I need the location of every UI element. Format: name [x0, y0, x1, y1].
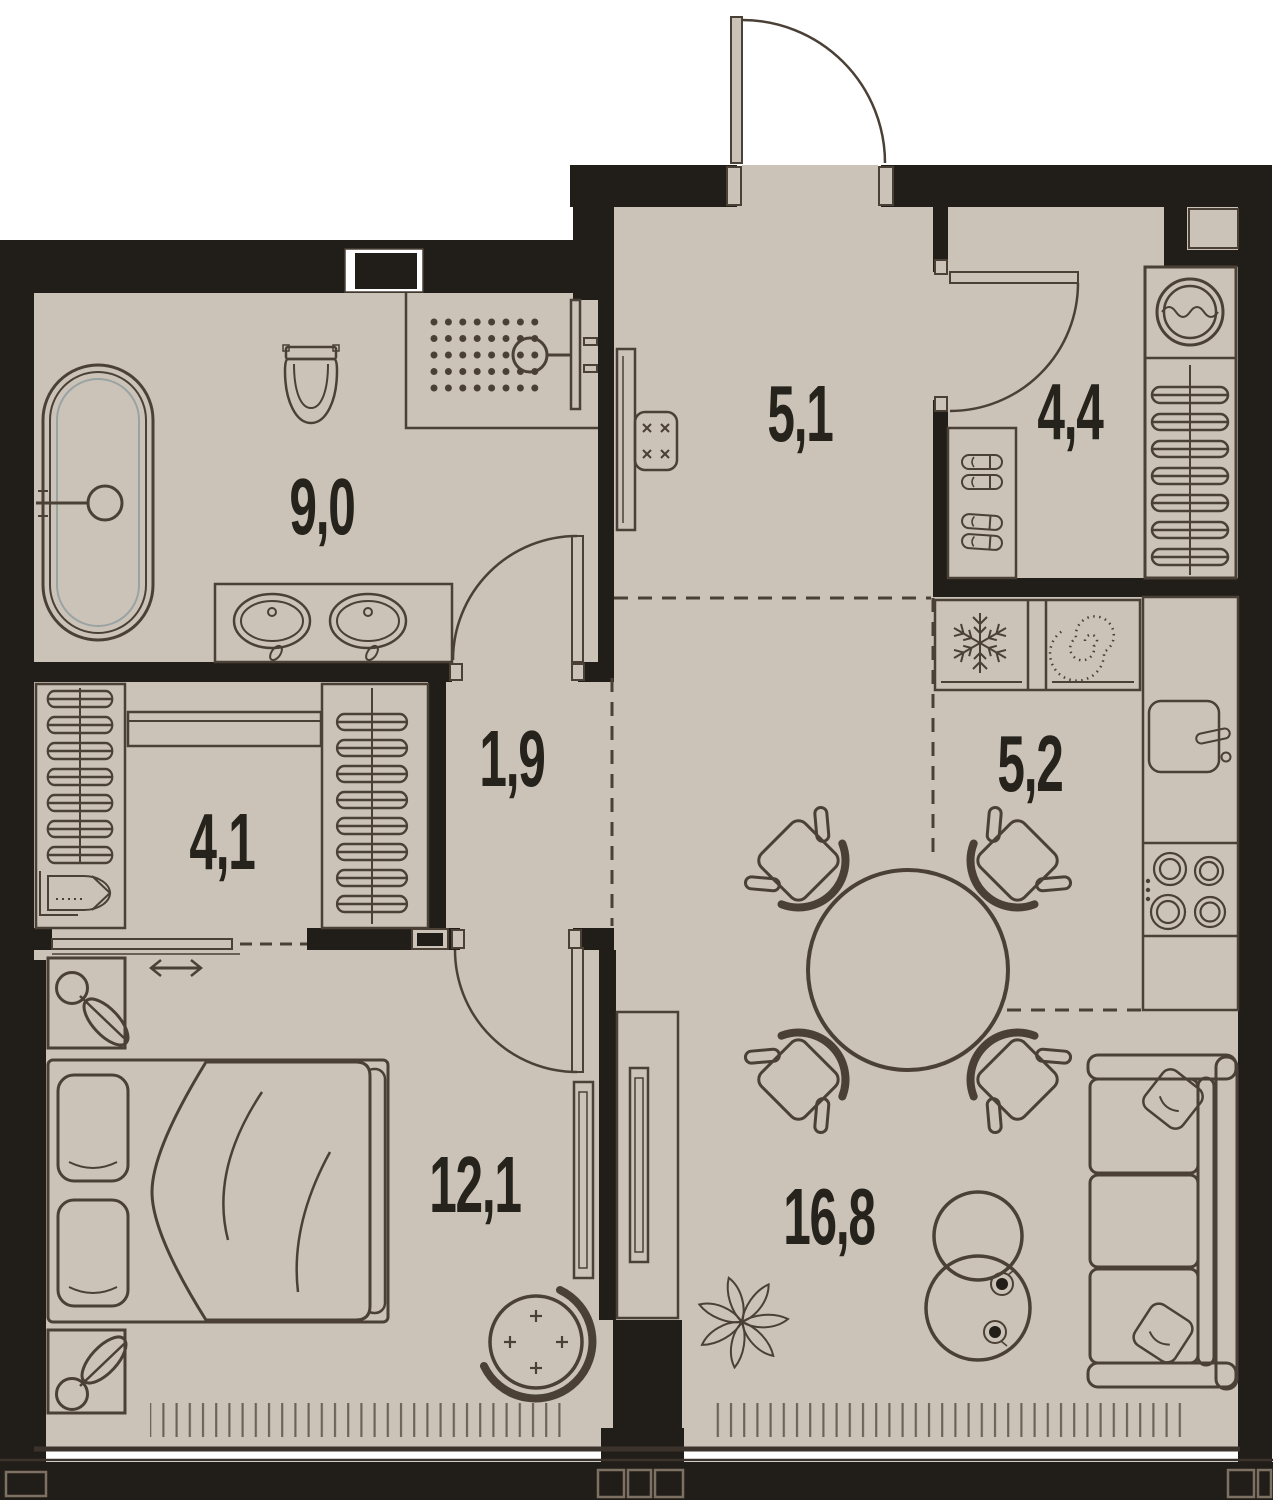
window-hatch — [710, 1399, 1188, 1437]
room-label-bedroom: 12,1 — [429, 1141, 521, 1230]
room-label-kitchen: 5,2 — [997, 720, 1062, 809]
dining-table — [808, 870, 1008, 1070]
floor-plan-drawing: 9,0 5,1 4,4 5,2 1,9 4,1 12,1 16,8 — [0, 0, 1273, 1500]
entrance-door — [731, 17, 885, 163]
room-label-dressing-room: 4,1 — [189, 798, 255, 887]
floor-plan: 9,0 5,1 4,4 5,2 1,9 4,1 12,1 16,8 — [0, 0, 1273, 1500]
room-label-bathroom: 9,0 — [289, 463, 354, 552]
room-label-hallway: 5,1 — [767, 370, 833, 459]
blanket — [152, 1062, 370, 1320]
window-hatch — [150, 1399, 570, 1437]
room-label-corridor: 1,9 — [479, 715, 544, 804]
room-label-living-room: 16,8 — [783, 1173, 875, 1262]
room-label-wardrobe: 4,4 — [1037, 368, 1103, 457]
entrance-threshold — [742, 165, 878, 207]
